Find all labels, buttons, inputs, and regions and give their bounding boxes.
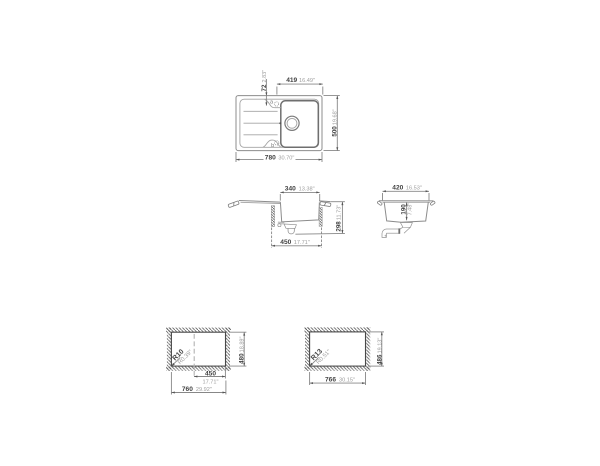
- svg-text:486: 486: [376, 354, 383, 365]
- svg-text:11.73": 11.73": [336, 205, 342, 220]
- svg-text:500: 500: [332, 126, 339, 137]
- svg-text:b: b: [271, 143, 274, 149]
- svg-text:29.92": 29.92": [196, 387, 212, 393]
- svg-text:7.48": 7.48": [408, 203, 414, 216]
- svg-text:19.13": 19.13": [377, 338, 383, 354]
- svg-text:30.15": 30.15": [339, 377, 355, 383]
- svg-text:17.71": 17.71": [203, 379, 219, 385]
- svg-text:18.89": 18.89": [240, 337, 246, 353]
- svg-text:13.38": 13.38": [299, 186, 315, 192]
- svg-text:16.53": 16.53": [406, 185, 422, 191]
- svg-text:450: 450: [205, 370, 216, 377]
- svg-text:340: 340: [285, 185, 296, 192]
- svg-text:760: 760: [182, 386, 193, 393]
- svg-text:420: 420: [392, 184, 403, 191]
- svg-text:766: 766: [325, 376, 336, 383]
- svg-text:780: 780: [265, 154, 276, 161]
- svg-text:2.83": 2.83": [262, 70, 268, 83]
- svg-text:a: a: [270, 100, 274, 106]
- svg-text:17.71": 17.71": [294, 240, 310, 246]
- svg-text:450: 450: [280, 239, 291, 246]
- svg-text:19.68": 19.68": [333, 109, 339, 125]
- svg-text:30.70": 30.70": [278, 155, 294, 161]
- svg-text:72: 72: [261, 84, 268, 91]
- svg-text:190: 190: [400, 204, 407, 215]
- svg-text:298: 298: [335, 221, 342, 232]
- svg-text:419: 419: [286, 77, 297, 84]
- svg-text:16.49": 16.49": [299, 78, 315, 84]
- svg-text:480: 480: [239, 353, 246, 364]
